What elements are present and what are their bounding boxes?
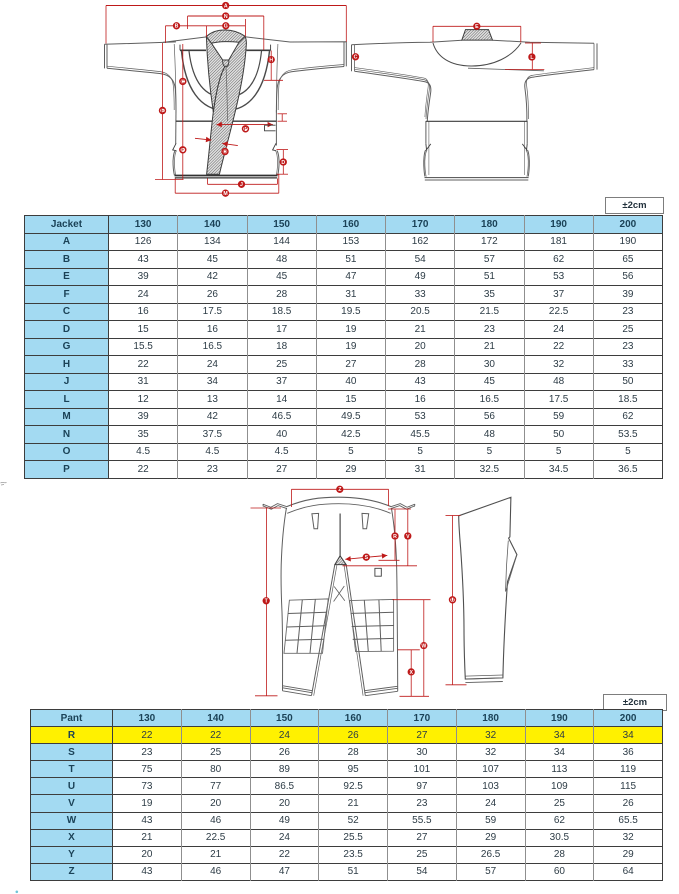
svg-text:W: W [421,644,426,650]
svg-text:V: V [406,534,410,540]
svg-text:C: C [181,79,185,85]
svg-text:E: E [475,24,479,30]
svg-text:B: B [175,24,179,30]
svg-text:J: J [240,182,243,188]
svg-text:F: F [181,148,184,154]
svg-text:D: D [281,160,285,166]
svg-text:X: X [409,670,413,676]
svg-text:C: C [354,55,358,61]
svg-text:S: S [365,555,369,561]
svg-text:H: H [269,58,273,64]
svg-text:M: M [223,191,227,197]
svg-text:O: O [223,149,227,155]
svg-text:N: N [224,14,228,20]
svg-text:U: U [451,598,455,604]
svg-text:R: R [393,534,397,540]
svg-text:A: A [224,3,228,9]
svg-text:G: G [224,24,228,30]
